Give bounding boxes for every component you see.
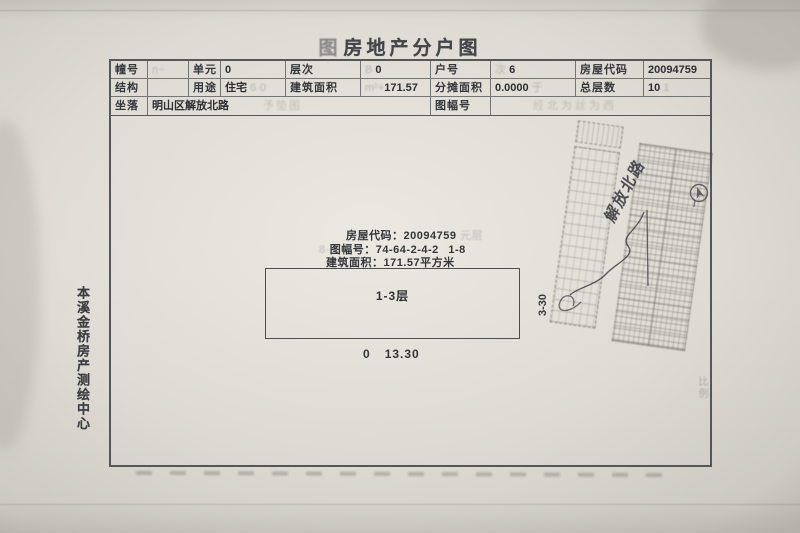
field-structure-value xyxy=(148,79,189,97)
field-building-no-label: 幢号 xyxy=(111,61,148,79)
annotation-house-code-artifact: 元层 xyxy=(460,230,483,242)
drawing-area: 房屋代码：20094759 元层 8-图幅号：74-64-2-4-2 1-8 建… xyxy=(111,116,710,465)
field-shared-area-value: 0.0000 xyxy=(495,82,529,94)
field-house-no-value: 6 xyxy=(509,64,515,76)
field-house-code-label: 房屋代码 xyxy=(576,61,644,79)
field-shared-area-label: 分摊面积 xyxy=(431,79,491,97)
north-arrow-icon xyxy=(687,182,711,208)
field-usage-value: 住宅 xyxy=(225,82,247,94)
bottom-smudge-artifact xyxy=(136,471,674,477)
field-house-code-value: 20094759 xyxy=(644,61,710,79)
sketch-block-small xyxy=(575,120,624,148)
annotation-block: 房屋代码：20094759 元层 8-图幅号：74-64-2-4-2 1-8 建… xyxy=(319,230,483,271)
page-title-text: 房地产分户图 xyxy=(344,38,482,59)
photo-shade-left xyxy=(0,120,40,450)
field-location-label: 坐落 xyxy=(111,97,148,115)
field-structure-label: 结构 xyxy=(111,79,148,97)
field-total-floors-value: 10 xyxy=(648,82,660,94)
property-info-table: 幢号 n~ 单元 0 层次 B 0 户号 次 6 房屋代码 20094759 结… xyxy=(111,61,710,116)
scanned-document-photo: 图房地产分户图 幢号 n~ 单元 0 层次 B 0 户号 次 6 房屋代码 20… xyxy=(0,0,800,533)
field-total-floors-label: 总层数 xyxy=(576,79,644,97)
shared-area-artifact: 于 xyxy=(532,82,543,94)
dimension-width-prefix: 0 xyxy=(363,347,371,361)
building-no-artifact: n~ xyxy=(152,64,165,76)
field-unit-value: 0 xyxy=(221,61,286,79)
field-location-value: 明山区解放北路 xyxy=(152,100,229,112)
dimension-width: 013.30 xyxy=(363,347,420,361)
field-usage-label: 用途 xyxy=(189,79,221,97)
unit-floor-label: 1-3层 xyxy=(266,287,519,304)
total-floors-artifact: 1 xyxy=(663,82,669,94)
field-house-no-label: 户号 xyxy=(431,61,491,79)
field-map-sheet-label: 图幅号 xyxy=(431,97,491,115)
location-stamp-artifact: 予垫图 xyxy=(263,100,302,112)
sketch-block-left xyxy=(550,146,620,329)
field-floor-value: 0 xyxy=(375,64,381,76)
title-stamp-artifact: 图 xyxy=(318,38,341,59)
annotation-map-sheet-artifact: 8- xyxy=(319,244,330,256)
page-title: 图房地产分户图 xyxy=(0,33,800,60)
floor-area-artifact: m²+ xyxy=(365,82,384,94)
usage-artifact: 6·0 xyxy=(250,82,266,94)
field-floor-area-label: 建筑面积 xyxy=(286,79,361,97)
scale-artifact: 比例 xyxy=(694,376,709,400)
sheet-frame: 幢号 n~ 单元 0 层次 B 0 户号 次 6 房屋代码 20094759 结… xyxy=(109,59,712,467)
field-floor-area-value: 171.57 xyxy=(384,82,418,94)
annotation-house-code: 房屋代码：20094759 元层 xyxy=(346,230,483,244)
annotation-map-sheet: 8-图幅号：74-64-2-4-2 1-8 xyxy=(319,244,483,258)
field-floor-label: 层次 xyxy=(286,61,361,79)
house-no-artifact: 次 xyxy=(495,64,506,76)
surveying-agency-name: 本溪金桥房产测绘中心 xyxy=(73,286,92,436)
field-unit-label: 单元 xyxy=(189,61,221,79)
floor-artifact: B xyxy=(365,64,372,76)
map-sheet-artifact: 经北为丝为西 xyxy=(533,100,617,112)
unit-outline: 1-3层 xyxy=(265,268,520,339)
